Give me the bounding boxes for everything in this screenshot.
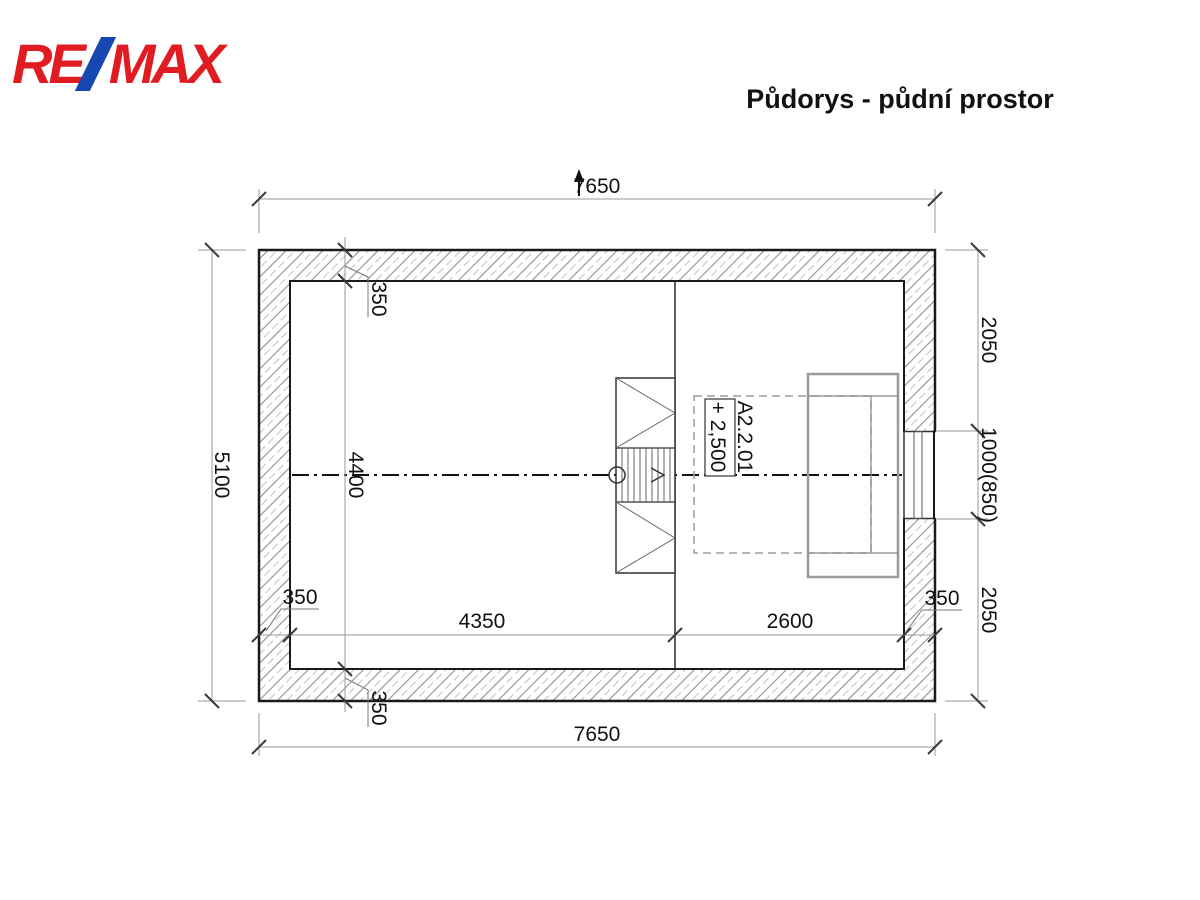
room-label: A2.2.01 — [733, 401, 756, 473]
floorplan-svg: + 2,500 A2.2.01 7650 7650 — [0, 0, 1200, 900]
dim-top: 7650 — [252, 169, 942, 233]
wall-bottom-value: 350 — [367, 690, 390, 725]
dim-right-top-value: 2050 — [977, 317, 1000, 364]
dim-left-value: 5100 — [210, 452, 233, 499]
stairs — [609, 378, 675, 573]
wall-left-value: 350 — [282, 586, 317, 609]
dim-right-window-value: 1000(850) — [977, 427, 1000, 523]
wall-right-value: 350 — [924, 587, 959, 610]
page: REMAX Půdorys - půdní prostor — [0, 0, 1200, 900]
dim-inner-left-width-value: 4350 — [459, 610, 506, 633]
dim-inner-vertical: 4400 350 350 — [338, 237, 390, 727]
dim-inner-height-value: 4400 — [344, 452, 367, 499]
dim-bottom: 7650 — [252, 713, 942, 756]
dim-left: 5100 — [198, 243, 246, 708]
dim-right: 2050 1000(850) 2050 — [937, 243, 1000, 708]
wall-top-value: 350 — [367, 281, 390, 316]
room-labels: + 2,500 A2.2.01 — [705, 399, 756, 476]
dim-inner-right-width-value: 2600 — [767, 610, 814, 633]
level-label: + 2,500 — [706, 402, 729, 473]
window — [901, 431, 937, 519]
dim-bottom-value: 7650 — [574, 723, 621, 746]
window-opening — [901, 432, 937, 518]
dim-right-bottom-value: 2050 — [977, 587, 1000, 634]
dim-inner-horizontal: 4350 2600 350 350 — [252, 586, 962, 642]
